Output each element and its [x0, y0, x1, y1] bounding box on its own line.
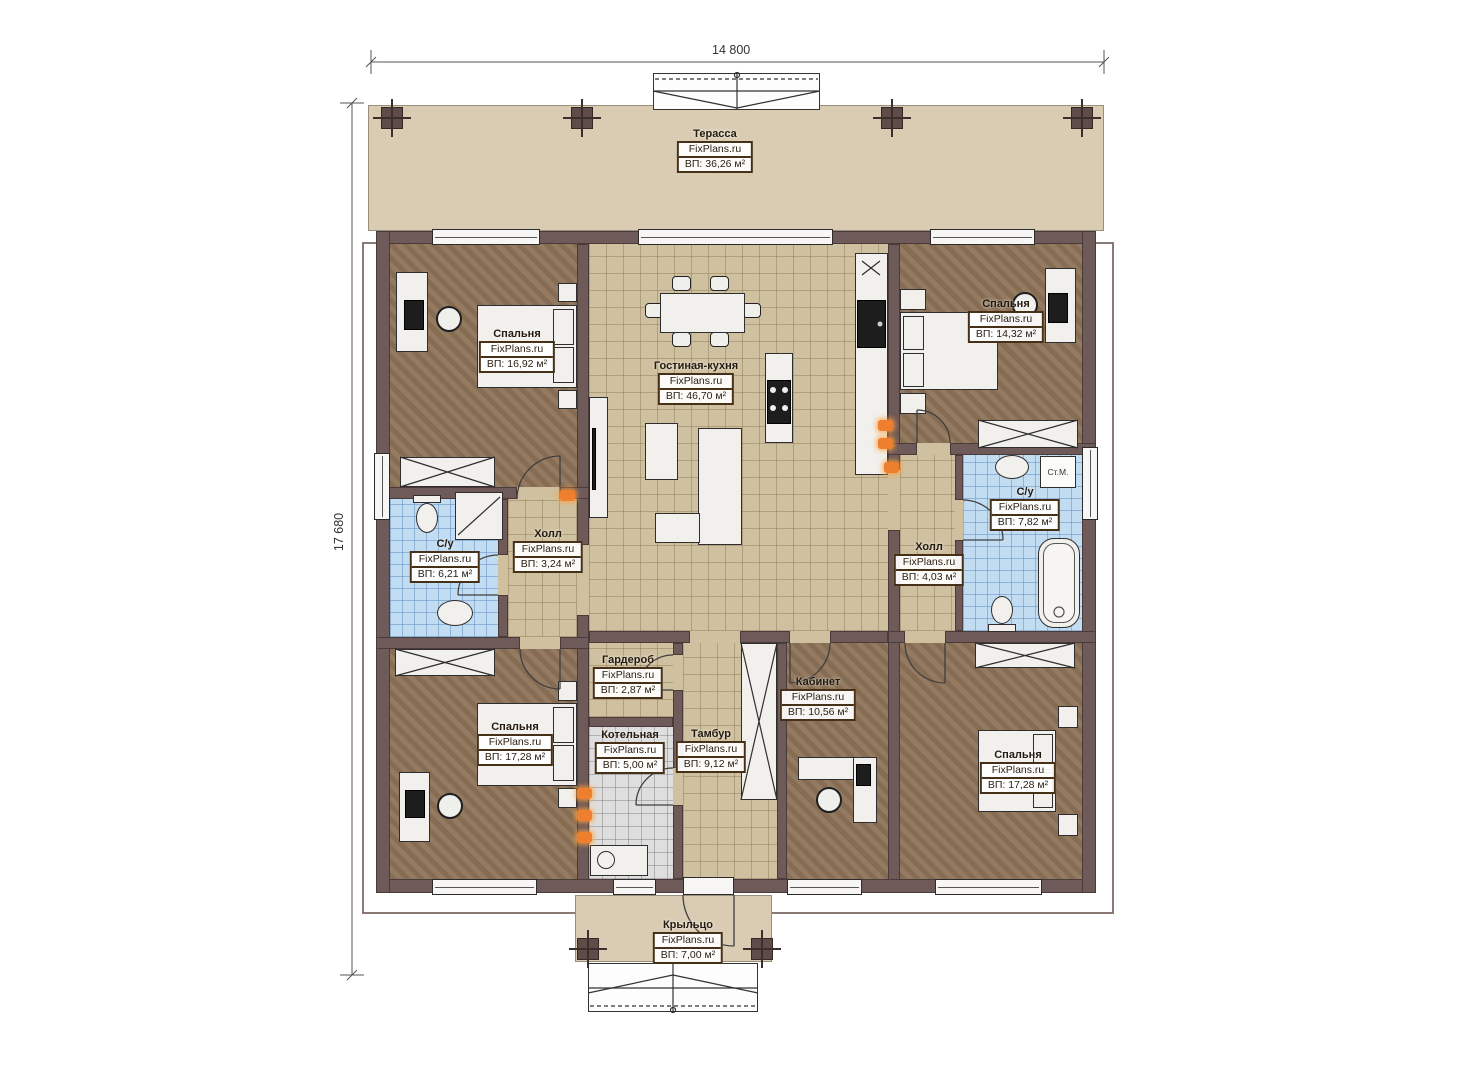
- nightstand: [558, 390, 577, 409]
- room-brand: FixPlans.ru: [970, 313, 1042, 328]
- vestibule-closet: [741, 643, 777, 800]
- outlet-icon: [560, 490, 575, 501]
- outlet-icon: [577, 788, 592, 799]
- room-brand: FixPlans.ru: [660, 375, 732, 390]
- door-opening: [905, 631, 945, 643]
- window: [935, 879, 1042, 895]
- wall-interior: [376, 637, 520, 649]
- nightstand: [900, 289, 926, 310]
- sofa: [698, 428, 742, 545]
- wardrobe-closet: [400, 457, 495, 487]
- terrace-door: [638, 229, 833, 245]
- room-info-box: FixPlans.ru ВП: 17,28 м²: [980, 762, 1056, 794]
- terrace-stairs: [653, 73, 820, 110]
- room-name: С/у: [990, 486, 1060, 498]
- monitor: [405, 790, 425, 818]
- monitor: [404, 300, 424, 330]
- room-info-box: FixPlans.ru ВП: 5,00 м²: [595, 742, 665, 774]
- label-vestibule: Тамбур FixPlans.ru ВП: 9,12 м²: [676, 728, 746, 773]
- wall-outer-left: [376, 231, 390, 893]
- dining-table: [660, 293, 745, 333]
- entrance-door-opening: [683, 877, 734, 895]
- room-area: ВП: 7,82 м²: [992, 516, 1058, 529]
- pillow: [553, 707, 574, 743]
- room-brand: FixPlans.ru: [515, 543, 581, 558]
- dimension-width: 14 800: [712, 43, 750, 57]
- room-info-box: FixPlans.ru ВП: 7,82 м²: [990, 499, 1060, 531]
- toilet-tank: [413, 495, 441, 503]
- window: [787, 879, 862, 895]
- washing-machine-label: Ст.М.: [1048, 467, 1069, 477]
- room-brand: FixPlans.ru: [982, 764, 1054, 779]
- room-brand: FixPlans.ru: [595, 669, 661, 684]
- room-area: ВП: 46,70 м²: [660, 390, 732, 403]
- wall-interior: [589, 631, 690, 643]
- room-info-box: FixPlans.ru ВП: 3,24 м²: [513, 541, 583, 573]
- room-area: ВП: 4,03 м²: [896, 571, 962, 584]
- room-info-box: FixPlans.ru ВП: 16,92 м²: [479, 341, 555, 373]
- room-brand: FixPlans.ru: [782, 691, 854, 706]
- label-living-kitchen: Гостиная-кухня FixPlans.ru ВП: 46,70 м²: [654, 360, 738, 405]
- toilet-tank: [988, 624, 1016, 632]
- door-opening: [888, 470, 900, 530]
- pillow: [903, 316, 924, 350]
- room-brand: FixPlans.ru: [481, 343, 553, 358]
- room-area: ВП: 5,00 м²: [597, 759, 663, 772]
- pillow: [553, 745, 574, 781]
- pillow: [553, 347, 574, 383]
- window: [613, 879, 656, 895]
- nightstand: [558, 788, 577, 808]
- wall-interior: [830, 631, 888, 643]
- room-brand: FixPlans.ru: [992, 501, 1058, 516]
- outlet-icon: [878, 420, 893, 431]
- tv: [592, 428, 596, 490]
- porch-post: [577, 938, 599, 960]
- window: [1082, 447, 1098, 520]
- room-info-box: FixPlans.ru ВП: 2,87 м²: [593, 667, 663, 699]
- door-opening: [955, 500, 963, 540]
- shower: [455, 492, 503, 540]
- label-hall-left: Холл FixPlans.ru ВП: 3,24 м²: [513, 528, 583, 573]
- room-info-box: FixPlans.ru ВП: 9,12 м²: [676, 741, 746, 773]
- terrace-post: [381, 107, 403, 129]
- floor-plan: Ст.М.: [0, 0, 1473, 1080]
- boiler-dial: [597, 851, 615, 869]
- room-brand: FixPlans.ru: [655, 934, 721, 949]
- office-chair: [816, 787, 842, 813]
- wall-interior: [740, 631, 790, 643]
- room-area: ВП: 7,00 м²: [655, 949, 721, 962]
- outlet-icon: [884, 462, 899, 473]
- terrace-post: [1071, 107, 1093, 129]
- bathtub-inner: [1043, 543, 1075, 623]
- door-opening: [690, 631, 740, 643]
- kitchen-sink: [857, 300, 886, 348]
- room-name: Тамбур: [676, 728, 746, 740]
- window: [432, 229, 540, 245]
- outlet-icon: [577, 832, 592, 843]
- room-area: ВП: 6,21 м²: [412, 568, 478, 581]
- room-name: Крыльцо: [653, 919, 723, 931]
- room-area: ВП: 17,28 м²: [479, 751, 551, 764]
- door-opening: [673, 768, 683, 805]
- toilet: [416, 503, 438, 533]
- label-terrace: Терасса FixPlans.ru ВП: 36,26 м²: [677, 128, 753, 173]
- room-area: ВП: 3,24 м²: [515, 558, 581, 571]
- label-hall-right: Холл FixPlans.ru ВП: 4,03 м²: [894, 541, 964, 586]
- wall-interior: [888, 631, 905, 643]
- room-name: Терасса: [677, 128, 753, 140]
- coffee-table: [645, 423, 678, 480]
- room-name: С/у: [410, 538, 480, 550]
- washing-machine: Ст.М.: [1040, 456, 1076, 488]
- room-name: Гардероб: [593, 654, 663, 666]
- pillow: [903, 353, 924, 387]
- room-brand: FixPlans.ru: [679, 143, 751, 158]
- room-area: ВП: 10,56 м²: [782, 706, 854, 719]
- terrace-post: [881, 107, 903, 129]
- room-name: Спальня: [980, 749, 1056, 761]
- room-name: Холл: [513, 528, 583, 540]
- wardrobe-closet: [975, 643, 1075, 668]
- door-opening: [498, 555, 508, 595]
- wall-interior: [945, 631, 1096, 643]
- room-brand: FixPlans.ru: [896, 556, 962, 571]
- room-brand: FixPlans.ru: [412, 553, 478, 568]
- room-name: Спальня: [477, 721, 553, 733]
- window: [432, 879, 537, 895]
- door-opening: [917, 443, 950, 455]
- wall-interior: [955, 455, 963, 500]
- room-brand: FixPlans.ru: [678, 743, 744, 758]
- terrace-post: [571, 107, 593, 129]
- room-info-box: FixPlans.ru ВП: 10,56 м²: [780, 689, 856, 721]
- monitor: [856, 764, 871, 786]
- wall-interior: [560, 637, 589, 649]
- door-opening: [790, 631, 830, 643]
- label-bedroom-bottom-left: Спальня FixPlans.ru ВП: 17,28 м²: [477, 721, 553, 766]
- cooktop: [767, 380, 791, 424]
- dining-chair: [710, 276, 729, 291]
- room-area: ВП: 2,87 м²: [595, 684, 661, 697]
- wall-interior: [888, 244, 900, 470]
- room-info-box: FixPlans.ru ВП: 7,00 м²: [653, 932, 723, 964]
- room-info-box: FixPlans.ru ВП: 4,03 м²: [894, 554, 964, 586]
- porch-post: [751, 938, 773, 960]
- wall-interior: [589, 717, 673, 727]
- room-info-box: FixPlans.ru ВП: 36,26 м²: [677, 141, 753, 173]
- nightstand: [558, 681, 577, 701]
- label-bedroom-top-right: Спальня FixPlans.ru ВП: 14,32 м²: [968, 298, 1044, 343]
- room-area: ВП: 9,12 м²: [678, 758, 744, 771]
- room-info-box: FixPlans.ru ВП: 6,21 м²: [410, 551, 480, 583]
- porch-stairs: [588, 963, 758, 1012]
- nightstand: [558, 283, 577, 302]
- dining-chair: [672, 276, 691, 291]
- monitor: [1048, 293, 1068, 323]
- door-opening: [517, 487, 560, 499]
- label-bedroom-top-left: Спальня FixPlans.ru ВП: 16,92 м²: [479, 328, 555, 373]
- room-name: Холл: [894, 541, 964, 553]
- label-boiler-room: Котельная FixPlans.ru ВП: 5,00 м²: [595, 729, 665, 774]
- room-area: ВП: 36,26 м²: [679, 158, 751, 171]
- room-area: ВП: 14,32 м²: [970, 328, 1042, 341]
- nightstand: [1058, 706, 1078, 728]
- wardrobe-closet: [395, 649, 495, 676]
- window: [374, 453, 390, 520]
- room-area: ВП: 17,28 м²: [982, 779, 1054, 792]
- pillow: [553, 309, 574, 345]
- room-area: ВП: 16,92 м²: [481, 358, 553, 371]
- office-chair: [437, 793, 463, 819]
- room-name: Спальня: [968, 298, 1044, 310]
- dining-chair: [710, 332, 729, 347]
- label-wardrobe-room: Гардероб FixPlans.ru ВП: 2,87 м²: [593, 654, 663, 699]
- outlet-icon: [577, 810, 592, 821]
- room-name: Котельная: [595, 729, 665, 741]
- label-bathroom-right: С/у FixPlans.ru ВП: 7,82 м²: [990, 486, 1060, 531]
- window: [930, 229, 1035, 245]
- sofa-chaise: [655, 513, 700, 543]
- label-porch: Крыльцо FixPlans.ru ВП: 7,00 м²: [653, 919, 723, 964]
- wall-outer-right: [1082, 231, 1096, 893]
- toilet: [991, 596, 1013, 624]
- room-brand: FixPlans.ru: [479, 736, 551, 751]
- room-brand: FixPlans.ru: [597, 744, 663, 759]
- nightstand: [1058, 814, 1078, 836]
- nightstand: [900, 393, 926, 414]
- wall-interior: [673, 643, 683, 655]
- bathroom-sink: [437, 600, 473, 626]
- room-name: Спальня: [479, 328, 555, 340]
- wall-interior: [498, 595, 508, 637]
- label-bedroom-bottom-right: Спальня FixPlans.ru ВП: 17,28 м²: [980, 749, 1056, 794]
- dimension-height: 17 680: [332, 513, 346, 551]
- label-office: Кабинет FixPlans.ru ВП: 10,56 м²: [780, 676, 856, 721]
- dining-chair: [672, 332, 691, 347]
- wall-interior: [577, 244, 589, 545]
- room-name: Гостиная-кухня: [654, 360, 738, 372]
- wall-interior: [673, 805, 683, 879]
- room-info-box: FixPlans.ru ВП: 14,32 м²: [968, 311, 1044, 343]
- office-chair: [436, 306, 462, 332]
- room-info-box: FixPlans.ru ВП: 17,28 м²: [477, 734, 553, 766]
- wardrobe-closet: [978, 420, 1078, 448]
- bathroom-sink: [995, 455, 1029, 479]
- room-name: Кабинет: [780, 676, 856, 688]
- door-opening: [520, 637, 560, 649]
- outlet-icon: [878, 438, 893, 449]
- room-info-box: FixPlans.ru ВП: 46,70 м²: [658, 373, 734, 405]
- door-opening: [673, 655, 683, 690]
- label-bathroom-left: С/у FixPlans.ru ВП: 6,21 м²: [410, 538, 480, 583]
